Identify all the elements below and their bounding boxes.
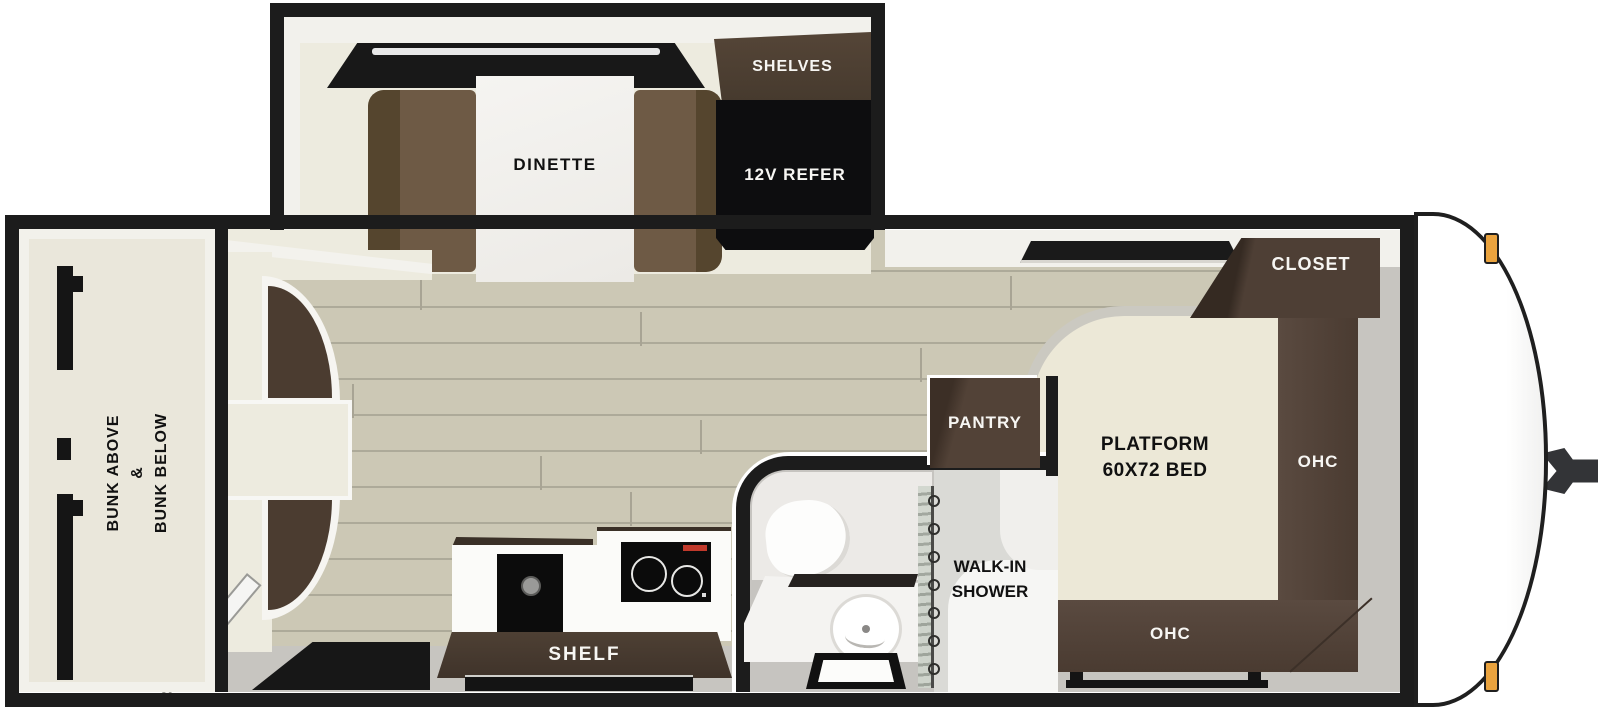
marker-light-top-icon: [1484, 233, 1499, 264]
exterior-wall: [5, 215, 1414, 707]
trailer-front-cap: [1414, 212, 1548, 707]
marker-light-bottom-icon: [1484, 661, 1499, 692]
shower-label-line2: SHOWER: [920, 579, 1060, 604]
walk-in-shower-label: WALK-IN SHOWER: [920, 554, 1060, 604]
shower-label-line1: WALK-IN: [920, 554, 1060, 579]
slide-out-wall: [270, 3, 885, 230]
floorplan-canvas: DINETTE SHELVES 12V REFER SHELF PLAT: [0, 0, 1600, 720]
hitch-coupler-icon: [1542, 448, 1598, 494]
